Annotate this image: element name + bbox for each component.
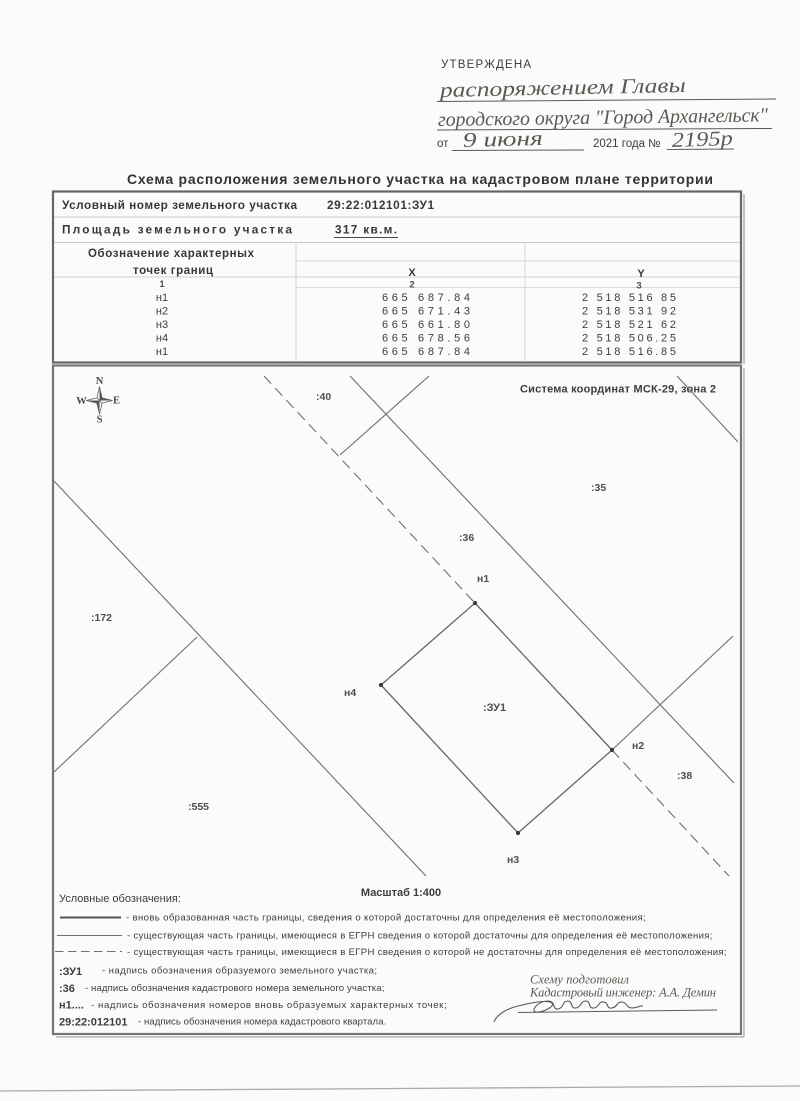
svg-text:н1: н1 [156, 292, 168, 304]
svg-text:Система координат МСК-29, зона: Система координат МСК-29, зона 2 [520, 384, 716, 396]
svg-text::40: :40 [316, 391, 331, 403]
svg-text:точек границ: точек границ [133, 265, 213, 277]
svg-text:2 518 521 62: 2 518 521 62 [582, 319, 676, 331]
svg-text::172: :172 [91, 612, 112, 624]
svg-text:Условный номер земельного учас: Условный номер земельного участка [62, 198, 297, 212]
svg-text:X: X [408, 267, 416, 279]
svg-text:н3: н3 [507, 854, 519, 866]
svg-text:2 518 516.85: 2 518 516.85 [582, 346, 676, 358]
svg-text:- надпись обозначения образуем: - надпись обозначения образуемого земель… [102, 966, 377, 977]
svg-text:н2: н2 [156, 306, 168, 318]
svg-text:665 671.43: 665 671.43 [382, 306, 470, 318]
svg-text:н2: н2 [632, 740, 644, 752]
svg-text:N: N [96, 376, 104, 387]
svg-text:- существующая часть границы,: - существующая часть границы, имеющиеся … [127, 931, 713, 942]
svg-text:н4: н4 [344, 687, 356, 699]
svg-text:Площадь земельного участка: Площадь земельного участка [62, 223, 292, 237]
svg-text:н3: н3 [156, 319, 168, 331]
svg-text:665 687.84: 665 687.84 [382, 346, 470, 358]
svg-text:- надпись обозначения номеров: - надпись обозначения номеров вновь обра… [91, 1000, 447, 1011]
svg-text:2195р: 2195р [671, 126, 733, 152]
svg-text:665 687.84: 665 687.84 [382, 292, 470, 304]
svg-text:2 518 531 92: 2 518 531 92 [582, 306, 676, 318]
svg-text::555: :555 [188, 801, 209, 813]
svg-text:665 678.56: 665 678.56 [382, 333, 470, 345]
svg-text:Условные обозначения:: Условные обозначения: [59, 893, 181, 905]
svg-text:2 518 516 85: 2 518 516 85 [582, 292, 676, 304]
svg-text:2 518 506.25: 2 518 506.25 [582, 333, 676, 345]
svg-text::ЗУ1: :ЗУ1 [483, 702, 506, 714]
svg-text:9 июня: 9 июня [463, 126, 544, 152]
svg-text::36: :36 [59, 983, 75, 995]
svg-text:Схема расположения земельного: Схема расположения земельного участка на… [127, 171, 713, 187]
svg-text:3: 3 [636, 281, 641, 292]
svg-text:Обозначение характерных: Обозначение характерных [88, 248, 255, 260]
svg-text:665 661.80: 665 661.80 [382, 319, 470, 331]
svg-text:E: E [113, 396, 120, 407]
svg-text:2021 года №: 2021 года № [593, 138, 661, 150]
svg-text:29:22:012101: 29:22:012101 [59, 1017, 128, 1029]
svg-text:Схему подготовил: Схему подготовил [530, 973, 630, 987]
svg-text:н1....: н1.... [59, 1000, 84, 1012]
svg-text:1: 1 [159, 279, 165, 290]
svg-text:- надпись обозначения кадастро: - надпись обозначения кадастрового номер… [85, 983, 384, 994]
svg-text::38: :38 [677, 770, 692, 782]
svg-text:2: 2 [409, 280, 414, 291]
svg-text:от: от [437, 138, 449, 150]
svg-text::36: :36 [459, 532, 474, 544]
svg-text:н1: н1 [156, 346, 168, 358]
svg-text::35: :35 [591, 482, 606, 494]
svg-text:Y: Y [637, 268, 645, 280]
svg-text::ЗУ1: :ЗУ1 [59, 966, 82, 978]
svg-text:- существующая часть границы,: - существующая часть границы, имеющиеся … [127, 947, 727, 958]
svg-text:S: S [97, 415, 103, 426]
svg-text:317 кв.м.: 317 кв.м. [335, 223, 397, 237]
svg-text:W: W [76, 396, 87, 407]
svg-text:н1: н1 [477, 573, 489, 585]
svg-text:н4: н4 [156, 333, 168, 345]
svg-text:Кадастровый инженер: А.А. Деми: Кадастровый инженер: А.А. Демин [529, 986, 716, 1000]
svg-text:- вновь образованная часть гра: - вновь образованная часть границы, свед… [126, 913, 646, 924]
svg-text:- надпись обозначения номера к: - надпись обозначения номера кадастровог… [138, 1017, 386, 1028]
svg-text:29:22:012101:ЗУ1: 29:22:012101:ЗУ1 [327, 198, 434, 212]
svg-text:Масштаб 1:400: Масштаб 1:400 [361, 887, 441, 899]
svg-text:распоряжением Главы: распоряжением Главы [437, 73, 686, 102]
svg-text:УТВЕРЖДЕНА: УТВЕРЖДЕНА [441, 59, 532, 71]
